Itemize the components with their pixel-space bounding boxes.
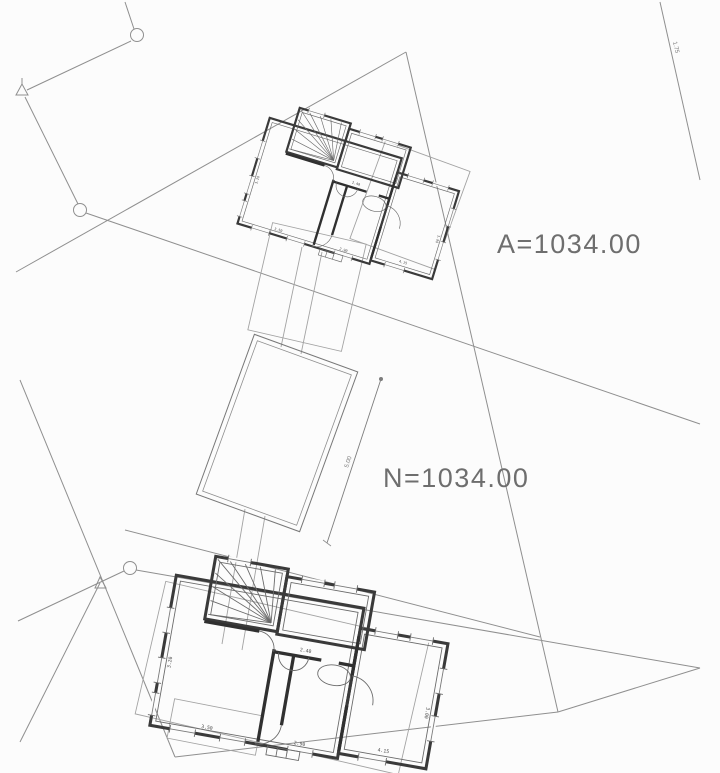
site-plan-canvas: 3.50 2.90 3.20 4.15 2.40 3.00 — [0, 0, 720, 773]
site-plan-drawing: 3.50 2.90 3.20 4.15 2.40 3.00 — [0, 0, 720, 773]
area-label: A=1034.00 — [497, 229, 642, 259]
building-plan-top — [233, 97, 472, 290]
survey-points — [16, 29, 144, 589]
benchmark-marker — [16, 78, 28, 95]
terrace-outlines — [135, 141, 470, 773]
pool-outline — [196, 334, 358, 531]
pool-dimension-line: 5.00 — [323, 377, 383, 546]
survey-point-circle — [74, 204, 87, 217]
walkway — [222, 247, 322, 650]
dimension-endpoint-dot — [379, 377, 383, 381]
level-label: N=1034.00 — [383, 463, 529, 493]
survey-point-circle — [131, 29, 144, 42]
survey-point-circle — [124, 562, 137, 575]
boundary-segment-label: 1.75 — [671, 41, 680, 54]
